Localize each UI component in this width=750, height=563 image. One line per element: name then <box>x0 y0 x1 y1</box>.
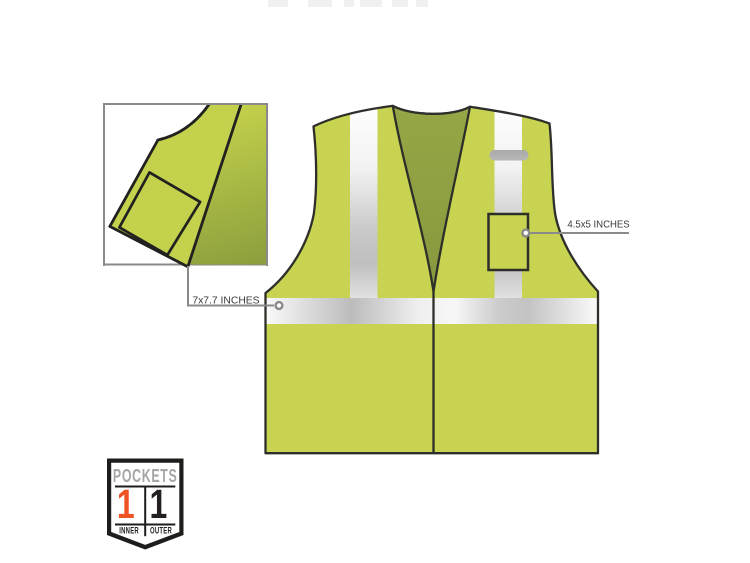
svg-text:4.5x5 INCHES: 4.5x5 INCHES <box>567 220 629 231</box>
svg-text:1: 1 <box>150 481 168 527</box>
svg-text:INNER: INNER <box>119 525 139 536</box>
svg-text:7x7.7 INCHES: 7x7.7 INCHES <box>192 295 259 306</box>
svg-text:1: 1 <box>117 481 135 527</box>
svg-text:OUTER: OUTER <box>150 525 172 536</box>
